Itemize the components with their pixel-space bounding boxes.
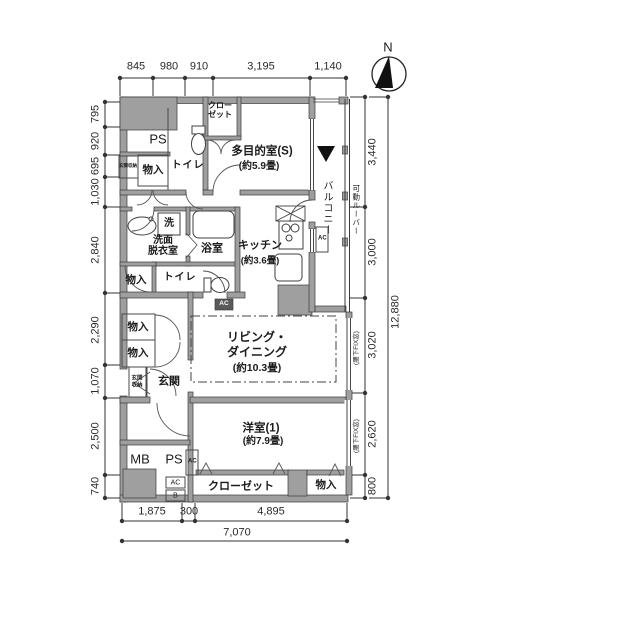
- storage-label-living-1: 物入: [128, 322, 149, 333]
- living-dining-label-1: リビング・: [227, 331, 287, 343]
- dim-left-2840: 2,840: [91, 236, 102, 264]
- window-note-living: (腰下FIX窓): [354, 331, 361, 365]
- multipurpose-room-size: (約5.9畳): [239, 162, 280, 172]
- dim-left-2290: 2,290: [91, 316, 102, 344]
- entrance-storage-label: 玄関収納: [131, 375, 144, 388]
- small-storage-label-top: 玄関収納: [119, 164, 137, 169]
- north-compass-icon: [372, 56, 406, 91]
- ps-label-top: PS: [149, 133, 166, 146]
- living-dining-size: (約10.3畳): [233, 363, 281, 374]
- north-label: N: [383, 41, 392, 54]
- dim-bottom-1875: 1,875: [138, 507, 166, 518]
- washer-label: 洗: [164, 219, 174, 229]
- storage-label-bottom-right: 物入: [316, 480, 337, 491]
- entrance-label: 玄関: [158, 377, 180, 388]
- western-room-label: 洋室(1): [242, 423, 279, 435]
- dim-right-2620: 2,620: [368, 420, 379, 448]
- ac-vertical-label-balcony: AC: [318, 236, 326, 243]
- toilet-label-mid: トイレ: [164, 273, 197, 283]
- washroom-label-1: 洗面: [153, 236, 173, 246]
- dim-left-1070: 1,070: [91, 367, 102, 395]
- dim-bottom-4895: 4,895: [257, 507, 285, 518]
- dim-bottom-300: 300: [180, 507, 198, 518]
- kitchen-size: (約3.6畳): [241, 256, 280, 266]
- ac-vertical-label-bedroom: AC: [188, 459, 196, 466]
- dim-top-1140: 1,140: [314, 62, 342, 73]
- toilet-label-top: トイレ: [172, 161, 205, 171]
- dim-left-795: 795: [91, 105, 102, 123]
- dim-top-845: 845: [127, 62, 145, 73]
- dim-top-3195: 3,195: [247, 62, 275, 73]
- storage-label-top: 物入: [143, 165, 164, 176]
- storage-label-living-2: 物入: [128, 348, 149, 359]
- stove-icon: [279, 221, 303, 249]
- dim-left-1030: 1,030: [91, 178, 102, 206]
- dim-left-695: 695: [91, 157, 102, 175]
- bathroom-label: 浴室: [201, 244, 223, 255]
- ac-living-label: AC: [219, 301, 228, 308]
- b-box-label: B: [173, 492, 178, 499]
- toilet-icon: [192, 126, 206, 155]
- kitchen-label: キッチン: [238, 241, 282, 252]
- closet-top-label-1: クロー: [208, 102, 232, 110]
- closet-top-label-2: ゼット: [208, 111, 232, 119]
- dim-bottom-total: 7,070: [223, 528, 251, 539]
- multipurpose-room-label: 多目的室(S): [231, 146, 292, 158]
- dim-left-740: 740: [91, 477, 102, 495]
- dim-top-910: 910: [190, 62, 208, 73]
- dim-right-3020: 3,020: [368, 331, 379, 359]
- western-room-size: (約7.9畳): [243, 437, 284, 447]
- ac-box-label: AC: [171, 479, 181, 486]
- dim-right-800: 800: [368, 477, 379, 495]
- dim-left-2500: 2,500: [91, 422, 102, 450]
- mb-label: MB: [130, 453, 150, 466]
- ps-label-bottom: PS: [165, 453, 182, 466]
- closet-bottom-label: クローゼット: [208, 482, 274, 493]
- window-note-bedroom: (腰下FIX窓): [354, 419, 361, 453]
- dim-right-total: 12,880: [391, 295, 402, 329]
- bathtub-icon: [193, 211, 234, 238]
- movable-louver-label: 可動ルーバー: [352, 185, 360, 236]
- living-dining-label-2: ダイニング: [227, 346, 287, 358]
- storage-label-mid: 物入: [126, 275, 147, 286]
- balcony-label: バルコニー: [321, 181, 331, 236]
- washroom-label-2: 脱衣室: [148, 247, 178, 257]
- balcony-partition-icon: [317, 146, 335, 162]
- dim-left-920: 920: [91, 132, 102, 150]
- dim-right-3000: 3,000: [368, 238, 379, 266]
- walls: [120, 97, 352, 502]
- dim-right-3440: 3,440: [368, 138, 379, 166]
- dim-top-980: 980: [160, 62, 178, 73]
- floor-plan-page: N 845 980 910 3,195 1,140 1,875 300 4,89…: [0, 0, 640, 640]
